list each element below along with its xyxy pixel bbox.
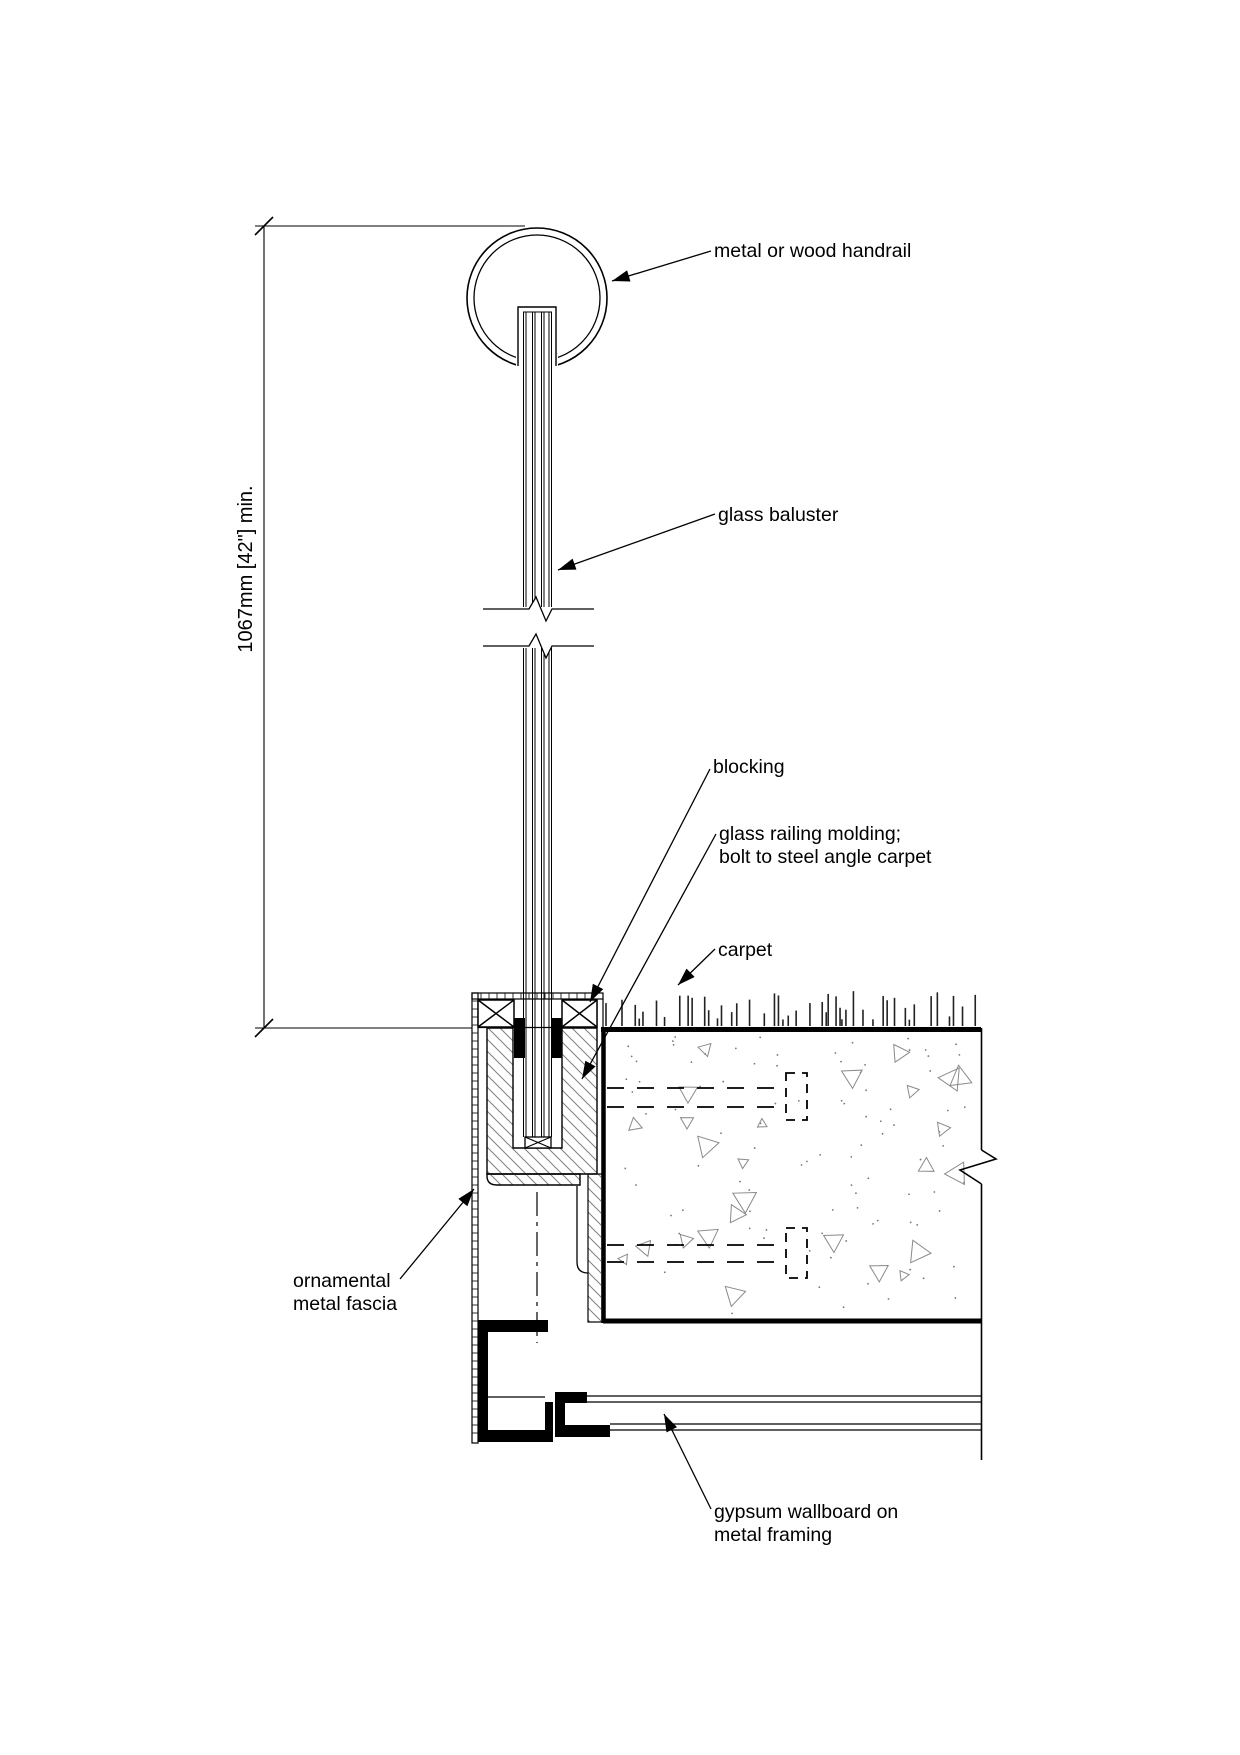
aggregate-triangle [680, 1118, 693, 1129]
aggregate-triangle [758, 1119, 767, 1127]
label-fascia-1: ornamental [293, 1270, 391, 1292]
aggregate-triangle [733, 1193, 757, 1214]
steel-angle-leg [588, 1174, 602, 1322]
aggregate-triangle [900, 1271, 909, 1281]
aggregate-triangle [894, 1045, 910, 1063]
dimension-1067mm [255, 217, 525, 1037]
framing-channel-small [555, 1392, 610, 1437]
carpet-pile [606, 991, 975, 1026]
label-molding-1: glass railing molding; [719, 823, 901, 845]
aggregate-triangle [738, 1159, 749, 1169]
label-carpet: carpet [718, 939, 773, 961]
slab-right-break-edge [960, 1028, 996, 1460]
aggregate-triangle [618, 1254, 627, 1264]
leader-fascia [400, 1189, 474, 1279]
aggregate-triangle [911, 1240, 931, 1262]
handrail-section [467, 228, 607, 373]
aggregate-triangle [636, 1241, 651, 1257]
glass-lower-section [524, 648, 552, 1137]
aggregate-triangle [725, 1286, 745, 1306]
molding-lip [487, 1174, 580, 1185]
leader-carpet [678, 949, 715, 985]
framing-channel-large [478, 1320, 553, 1442]
aggregate-triangle [938, 1122, 951, 1136]
label-handrail: metal or wood handrail [714, 240, 911, 262]
break-symbol [483, 597, 594, 658]
leader-molding [582, 834, 716, 1079]
aggregate-triangle [870, 1266, 888, 1282]
concrete-stipple [618, 1036, 972, 1314]
leader-blocking [590, 769, 710, 1002]
leader-gypsum [664, 1414, 711, 1509]
fascia-return [577, 1186, 588, 1273]
label-baluster: glass baluster [718, 504, 839, 526]
aggregate-triangle [950, 1065, 972, 1085]
glazing-gaskets [514, 1018, 562, 1148]
aggregate-triangle [842, 1070, 863, 1088]
dimension-text: 1067mm [42"] min. [235, 485, 257, 652]
aggregate-triangle [945, 1162, 965, 1184]
concrete-slab [601, 1028, 996, 1460]
label-gypsum-1: gypsum wallboard on [714, 1501, 898, 1523]
aggregate-triangle [679, 1087, 698, 1103]
label-gypsum-2: metal framing [714, 1524, 832, 1546]
blocking-squares [478, 1000, 597, 1028]
framing-stub [545, 1402, 553, 1430]
aggregate-triangle [907, 1086, 919, 1098]
label-blocking: blocking [713, 756, 785, 778]
aggregate-triangle [730, 1205, 746, 1223]
label-fascia-2: metal fascia [293, 1293, 397, 1315]
aggregate-triangle [629, 1117, 642, 1130]
detail-drawing: 1067mm [42"] min. metal or wood handrail… [0, 0, 1240, 1755]
aggregate-triangle [824, 1235, 844, 1253]
glass-baluster-panel [523, 312, 552, 1137]
drawing-canvas: 1067mm [42"] min. metal or wood handrail… [0, 0, 1240, 1755]
anchor-upper [607, 1073, 807, 1120]
aggregate-triangle [698, 1136, 719, 1158]
metal-framing [478, 1320, 610, 1442]
fascia-side-plate [472, 993, 478, 1443]
leader-handrail [612, 251, 711, 281]
leader-baluster [558, 514, 715, 570]
label-molding-2: bolt to steel angle carpet [719, 846, 932, 868]
anchor-lower [607, 1228, 807, 1278]
